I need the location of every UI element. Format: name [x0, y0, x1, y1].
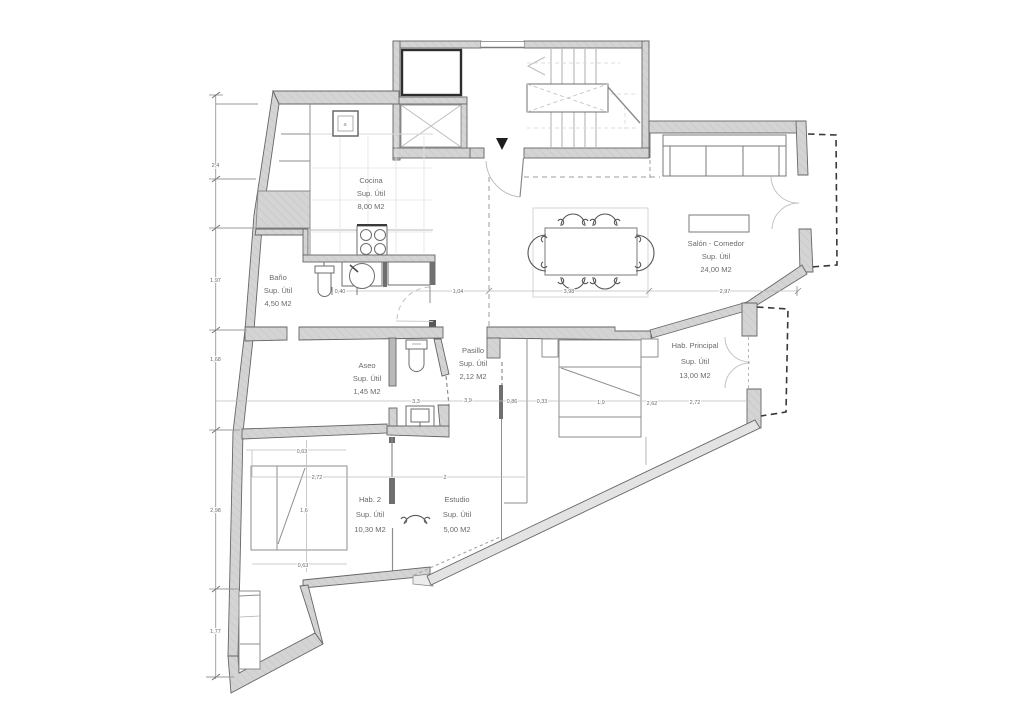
- svg-text:Sup. Útil: Sup. Útil: [357, 189, 386, 198]
- svg-text:2,72: 2,72: [690, 400, 701, 406]
- svg-text:2,62: 2,62: [647, 401, 658, 407]
- svg-text:Salón - Comedor: Salón - Comedor: [688, 239, 745, 248]
- svg-text:Sup. Útil: Sup. Útil: [702, 252, 731, 261]
- svg-text:3,3: 3,3: [412, 399, 420, 405]
- svg-text:2,4: 2,4: [212, 163, 220, 169]
- svg-text:Hab. 2: Hab. 2: [359, 495, 381, 504]
- svg-text:Sup. Útil: Sup. Útil: [681, 357, 710, 366]
- svg-text:2,72: 2,72: [312, 475, 323, 481]
- svg-text:Aseo: Aseo: [358, 361, 375, 370]
- svg-text:Sup. Útil: Sup. Útil: [356, 510, 385, 519]
- svg-text:0,40: 0,40: [335, 289, 346, 295]
- svg-text:0,63: 0,63: [297, 449, 308, 455]
- svg-text:Sup. Útil: Sup. Útil: [443, 510, 472, 519]
- svg-text:Sup. Útil: Sup. Útil: [459, 359, 488, 368]
- svg-text:24,00 M2: 24,00 M2: [700, 265, 731, 274]
- svg-text:2: 2: [443, 475, 446, 481]
- svg-text:0,86: 0,86: [507, 399, 518, 405]
- svg-text:1,97: 1,97: [210, 278, 221, 284]
- svg-text:2,12 M2: 2,12 M2: [459, 372, 486, 381]
- svg-text:1,77: 1,77: [210, 629, 221, 635]
- svg-text:0,33: 0,33: [537, 399, 548, 405]
- svg-text:Pasillo: Pasillo: [462, 346, 484, 355]
- svg-text:4,50 M2: 4,50 M2: [264, 299, 291, 308]
- svg-text:Cocina: Cocina: [359, 176, 383, 185]
- svg-text:2,98: 2,98: [210, 508, 221, 514]
- svg-text:1,9: 1,9: [597, 400, 605, 406]
- svg-text:10,30 M2: 10,30 M2: [354, 525, 385, 534]
- svg-text:3,9: 3,9: [464, 398, 472, 404]
- svg-text:2,97: 2,97: [720, 289, 731, 295]
- svg-text:13,00 M2: 13,00 M2: [679, 371, 710, 380]
- svg-text:1,6: 1,6: [300, 508, 308, 514]
- svg-text:Sup. Útil: Sup. Útil: [353, 374, 382, 383]
- svg-text:Estudio: Estudio: [444, 495, 469, 504]
- svg-text:Hab. Principal: Hab. Principal: [672, 341, 719, 350]
- svg-text:1,04: 1,04: [453, 289, 464, 295]
- svg-text:8,00 M2: 8,00 M2: [357, 202, 384, 211]
- svg-text:1,68: 1,68: [210, 357, 221, 363]
- svg-text:5,00 M2: 5,00 M2: [443, 525, 470, 534]
- svg-text:0,63: 0,63: [298, 563, 309, 569]
- svg-text:Baño: Baño: [269, 273, 287, 282]
- svg-text:3,98: 3,98: [564, 289, 575, 295]
- svg-text:1,45 M2: 1,45 M2: [353, 387, 380, 396]
- svg-text:Sup. Útil: Sup. Útil: [264, 286, 293, 295]
